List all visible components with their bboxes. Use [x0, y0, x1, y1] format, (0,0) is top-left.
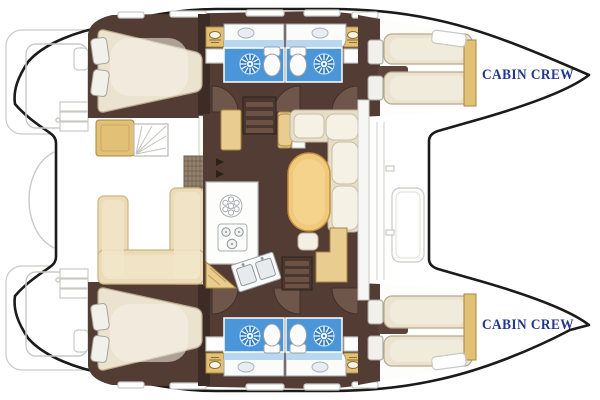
settee-cushion [326, 114, 358, 140]
grill-grid [184, 156, 206, 188]
berth-headboard [464, 40, 476, 106]
stool [298, 233, 318, 250]
crew-cabin-label-bottom: CABIN CREW [482, 317, 574, 333]
toilet-icon [290, 47, 307, 76]
galley-counter [206, 182, 258, 264]
settee-cushion [332, 142, 358, 184]
settee-cushion [294, 114, 324, 138]
saloon-front-wall [358, 100, 369, 300]
crew-cabin-label-top: CABIN CREW [482, 67, 574, 83]
floorplan-canvas: CABIN CREW CABIN CREW [0, 0, 600, 400]
stairs-starboard [282, 257, 312, 290]
cabinet [221, 110, 241, 150]
shower-sun-icon [314, 54, 334, 74]
port-hull [88, 10, 478, 118]
helm-steps [134, 124, 168, 156]
pillow-icon [90, 37, 109, 65]
round-hob-icon [220, 195, 242, 217]
pillow-icon [368, 40, 383, 64]
saloon [203, 97, 363, 292]
basin-icon [312, 28, 328, 38]
basin-icon [238, 28, 254, 38]
starboard-hull [88, 282, 478, 390]
catamaran-floorplan: CABIN CREW CABIN CREW [0, 0, 600, 400]
stairs-port [243, 97, 276, 134]
bathrooms [206, 24, 363, 82]
settee-cushion [332, 186, 358, 230]
stove-icon [218, 224, 247, 251]
foredeck-seat [392, 188, 424, 262]
pillow-icon [90, 69, 109, 97]
toilet-icon [264, 47, 281, 76]
pillow-icon [368, 76, 383, 100]
shower-sun-icon [240, 54, 260, 74]
